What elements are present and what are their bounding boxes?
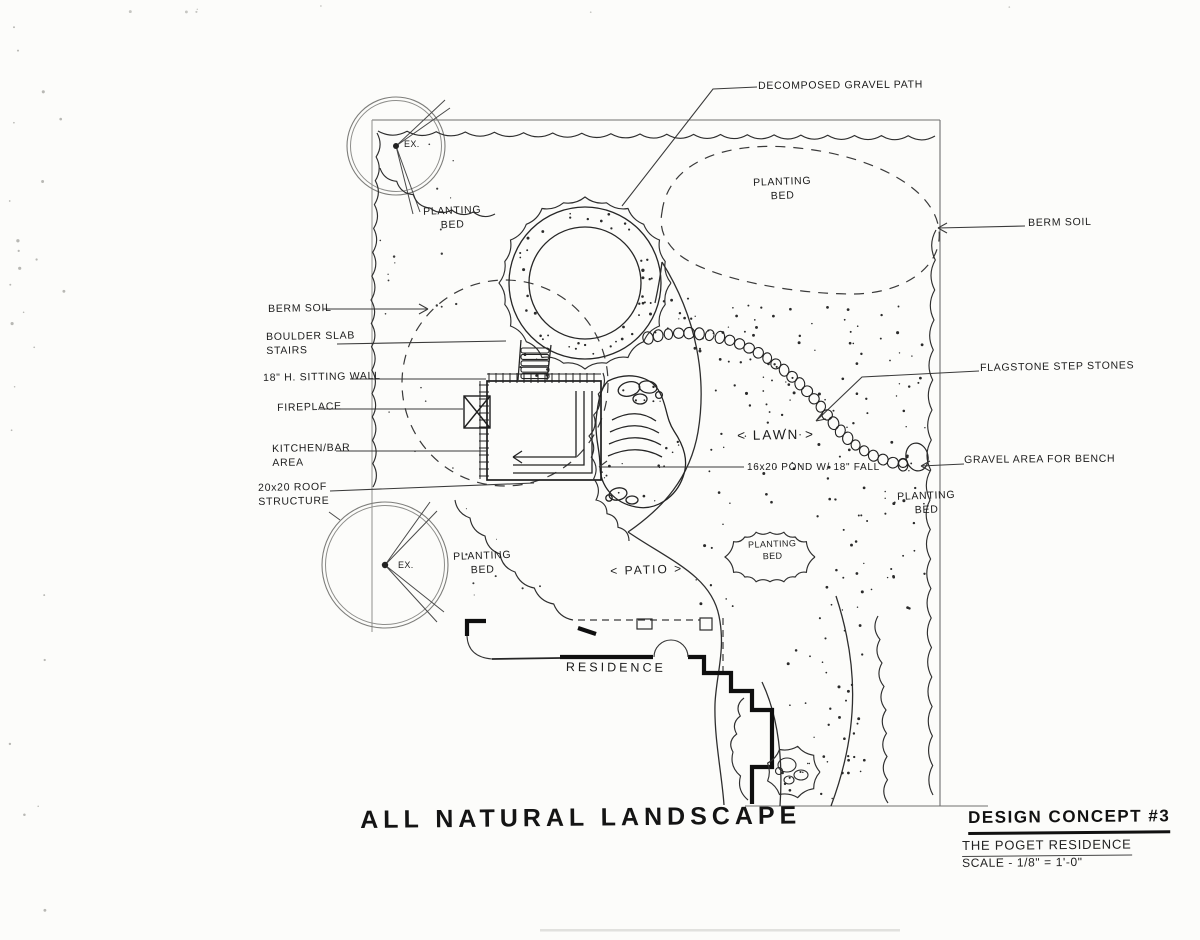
title-block-scale: SCALE - 1/8" = 1'-0": [962, 855, 1083, 872]
berm-circle-left: [402, 280, 608, 486]
callout-flagstone-step-stones: FLAGSTONE STEP STONES: [980, 359, 1134, 375]
leader-pond: [599, 461, 744, 467]
label-planting-bed-island: PLANTING BED: [742, 538, 803, 563]
landscape-curves: [628, 262, 853, 806]
callout-fireplace: FIREPLACE: [277, 400, 342, 415]
roof-structure-plan: [464, 381, 601, 480]
residence-plan: [467, 618, 772, 804]
kitchen-bar-counter: [513, 391, 592, 473]
leader-roof-structure: [330, 483, 534, 491]
label-planting-bed-top-left: PLANTING BED: [418, 204, 487, 234]
callout-pond: 16x20 POND W/ 18" FALL: [747, 461, 880, 474]
waterfall-arc: [610, 426, 659, 433]
waterfall-arc: [608, 450, 662, 457]
callout-berm-soil-right: BERM SOIL: [1028, 216, 1092, 231]
plan-title: ALL NATURAL LANDSCAPE: [360, 799, 801, 836]
fireplace-box: [464, 396, 490, 428]
leader-berm-soil-left: [323, 304, 428, 314]
pond-boulders-bottom: [606, 486, 638, 504]
label-residence: RESIDENCE: [566, 659, 666, 676]
leader-decomposed-gravel-path: [622, 87, 757, 206]
landscape-plan-sheet: DECOMPOSED GRAVEL PATH PLANTING BED PLAN…: [0, 0, 1200, 940]
leader-berm-soil-right: [938, 223, 1025, 233]
landscape-plan-drawing: [0, 0, 1200, 940]
callout-kitchen-bar-area: KITCHEN/BAR AREA: [272, 441, 367, 470]
ring-inner: [529, 227, 641, 339]
hand-drawn-texture: [9, 5, 1010, 912]
leader-lines: [320, 87, 1025, 491]
label-patio: < PATIO >: [610, 561, 683, 579]
pond-boulders-top: [617, 379, 663, 404]
callout-roof-structure: 20x20 ROOF STRUCTURE: [258, 480, 353, 509]
berm-soil-outlines: [402, 146, 939, 486]
title-block-client: THE POGET RESIDENCE: [962, 837, 1132, 857]
waterfall-arc: [609, 438, 661, 445]
waterfall-arc: [612, 414, 656, 421]
label-planting-bed-top-right: PLANTING BED: [748, 175, 817, 205]
label-existing-tree-bottom: EX.: [398, 560, 414, 572]
label-existing-tree-top: EX.: [404, 139, 420, 151]
callout-gravel-area-for-bench: GRAVEL AREA FOR BENCH: [964, 453, 1115, 468]
existing-tree-top: [347, 97, 450, 214]
title-block-concept: DESIGN CONCEPT #3: [968, 805, 1170, 835]
scan-artifacts: [540, 929, 900, 932]
callout-boulder-slab-stairs: BOULDER SLAB STAIRS: [266, 329, 366, 358]
pond-outline: [596, 376, 686, 508]
pond-plan: [596, 376, 686, 508]
existing-tree-bottom: [322, 502, 448, 628]
residence-walls-bold: [467, 621, 772, 804]
label-lawn: < LAWN >: [737, 426, 815, 445]
berm-blob-right: [661, 146, 939, 294]
callout-decomposed-gravel-path: DECOMPOSED GRAVEL PATH: [758, 79, 923, 94]
callout-berm-soil-left: BERM SOIL: [268, 302, 332, 317]
callout-sitting-wall: 18" H. SITTING WALL: [263, 370, 381, 386]
label-planting-bed-lower-left: PLANTING BED: [450, 549, 515, 578]
corridor-right-edge: [831, 596, 853, 806]
residence-walls-thin: [492, 658, 560, 659]
leader-flagstone: [816, 371, 979, 421]
label-planting-bed-right: PLANTING BED: [894, 489, 959, 518]
